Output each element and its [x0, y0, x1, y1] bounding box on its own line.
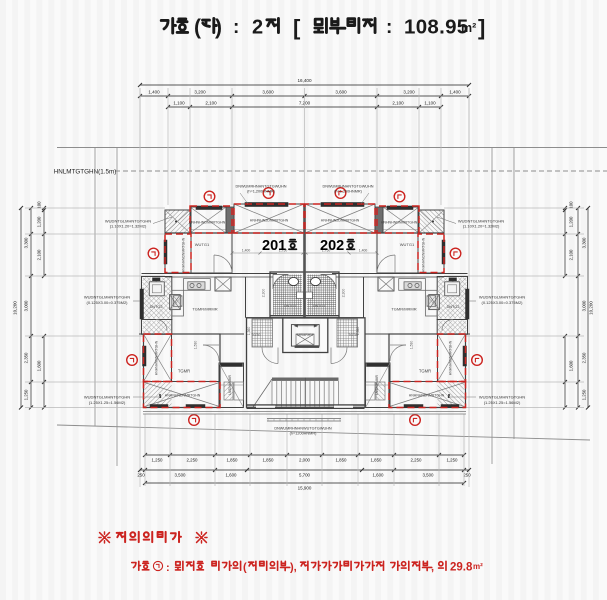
- svg-text:(0.125X3.00=0.375M2): (0.125X3.00=0.375M2): [86, 300, 128, 305]
- svg-text:HNHNHN2DNMRTGHN: HNHNHN2DNMRTGHN: [250, 219, 289, 223]
- svg-text:250: 250: [463, 473, 471, 478]
- svg-text:HNHNHNDNMRTGHN: HNHNHNDNMRTGHN: [189, 221, 226, 225]
- svg-text:2,250: 2,250: [187, 458, 199, 463]
- svg-text:DNTG2: DNTG2: [150, 305, 163, 309]
- svg-text:2,100: 2,100: [205, 101, 217, 106]
- svg-text::: :: [386, 17, 392, 38]
- svg-text:2,350: 2,350: [24, 352, 29, 363]
- svg-text:100: 100: [37, 201, 42, 209]
- svg-text:DNTG1: DNTG1: [313, 304, 325, 308]
- svg-text:HNHNHNDNMRTGHN: HNHNHNDNMRTGHN: [165, 394, 201, 398]
- svg-text:1,100: 1,100: [424, 101, 436, 106]
- svg-text::: :: [233, 17, 239, 38]
- svg-text:),: ),: [290, 562, 297, 574]
- svg-text:2,300: 2,300: [342, 289, 346, 298]
- svg-text:WUTG1: WUTG1: [400, 242, 415, 247]
- svg-text:LMDNHNMR: LMDNHNMR: [228, 375, 232, 395]
- svg-text:250: 250: [137, 473, 145, 478]
- svg-text:100: 100: [569, 201, 574, 209]
- svg-text:2,100: 2,100: [37, 249, 42, 260]
- svg-text:1,850: 1,850: [336, 458, 348, 463]
- svg-text:(1.25X1.25=1.56M2): (1.25X1.25=1.56M2): [484, 400, 521, 405]
- svg-text:3,000: 3,000: [24, 300, 29, 311]
- svg-text:1,600: 1,600: [37, 360, 42, 371]
- svg-text:2,100: 2,100: [392, 101, 404, 106]
- svg-text:3,300: 3,300: [24, 237, 29, 248]
- svg-text:1,250: 1,250: [447, 458, 459, 463]
- svg-text:WUDNTGLMHNTGTGHN: WUDNTGLMHNTGTGHN: [84, 295, 130, 300]
- svg-text:TGMR: TGMR: [178, 369, 190, 374]
- svg-text:1,200: 1,200: [37, 216, 42, 227]
- svg-text:3,500: 3,500: [175, 473, 187, 478]
- svg-text:(: (: [243, 562, 247, 574]
- svg-text:1,360: 1,360: [247, 327, 251, 336]
- svg-text:): ): [215, 16, 222, 39]
- svg-text:1,850: 1,850: [371, 458, 383, 463]
- svg-text:(h=1,200HNMR): (h=1,200HNMR): [247, 189, 275, 193]
- svg-text:m²: m²: [473, 562, 483, 571]
- svg-text:DNTG1: DNTG1: [284, 304, 296, 308]
- svg-text:1,530: 1,530: [194, 341, 198, 350]
- svg-text:5,700: 5,700: [299, 473, 311, 478]
- svg-text:[: [: [293, 15, 301, 40]
- svg-text:3,200: 3,200: [403, 90, 415, 95]
- svg-text:1,250: 1,250: [24, 389, 29, 400]
- svg-text:1,400: 1,400: [148, 90, 160, 95]
- svg-text:(1.10X1.20=1.32M2): (1.10X1.20=1.32M2): [110, 224, 147, 229]
- svg-text:1,250: 1,250: [152, 458, 164, 463]
- svg-text:HNHNHNDNMRTGHN: HNHNHNDNMRTGHN: [182, 237, 186, 272]
- svg-text:,: ,: [431, 562, 434, 574]
- svg-text:HNHNHNDNMRTGHN: HNHNHNDNMRTGHN: [155, 340, 159, 375]
- svg-text:(1.25X1.25=1.56M2): (1.25X1.25=1.56M2): [89, 400, 126, 405]
- svg-text:1,600: 1,600: [226, 473, 238, 478]
- svg-text:1,400: 1,400: [449, 90, 461, 95]
- svg-text:TGMR: TGMR: [419, 369, 431, 374]
- svg-text:202: 202: [320, 238, 344, 254]
- svg-text:10,200: 10,200: [589, 301, 594, 315]
- svg-text:MRMRHN: MRMRHN: [297, 333, 313, 337]
- svg-text:1,250: 1,250: [582, 389, 587, 400]
- svg-text:3,600: 3,600: [262, 90, 274, 95]
- svg-text:3,500: 3,500: [423, 473, 435, 478]
- svg-text:(h=1200HNMR): (h=1200HNMR): [290, 431, 317, 435]
- svg-text:1,400: 1,400: [242, 249, 251, 253]
- svg-text:TGTG: TGTG: [251, 333, 261, 337]
- svg-text:201: 201: [262, 238, 286, 254]
- svg-text:HNLMTGTGHN(1.5m): HNLMTGTGHN(1.5m): [54, 169, 117, 176]
- svg-text:3,200: 3,200: [194, 90, 206, 95]
- svg-text:3,000: 3,000: [582, 300, 587, 311]
- svg-text:m²: m²: [461, 21, 476, 35]
- svg-text:(h=1,200HNMR): (h=1,200HNMR): [334, 189, 362, 193]
- svg-text:TGMR/MRMR: TGMR/MRMR: [192, 307, 217, 312]
- svg-text:DNWUMRHNHNTGTGWUHN: DNWUMRHNHNTGTGWUHN: [322, 185, 373, 189]
- svg-text:1,600: 1,600: [373, 473, 385, 478]
- svg-text:1,530: 1,530: [410, 341, 414, 350]
- svg-text:(0.125X3.00=0.375M2): (0.125X3.00=0.375M2): [481, 300, 523, 305]
- svg-text:1,200: 1,200: [569, 216, 574, 227]
- svg-text:2,350: 2,350: [582, 352, 587, 363]
- svg-text:15,900: 15,900: [298, 486, 312, 491]
- svg-text:HNHNHNDNMRTGHN: HNHNHNDNMRTGHN: [449, 340, 453, 375]
- svg-text:1,850: 1,850: [263, 458, 275, 463]
- svg-text:HNHNHN2DNMRTGHN: HNHNHN2DNMRTGHN: [321, 219, 360, 223]
- svg-text:2: 2: [252, 17, 263, 39]
- svg-text:1,600: 1,600: [569, 360, 574, 371]
- svg-text:]: ]: [478, 15, 485, 40]
- svg-text:1,360: 1,360: [356, 327, 360, 336]
- svg-text:1,850: 1,850: [227, 458, 239, 463]
- svg-text:10,200: 10,200: [13, 301, 18, 315]
- svg-text:16,400: 16,400: [297, 78, 311, 83]
- svg-text:DNWUMRHNHNTGTGWUHN: DNWUMRHNHNTGTGWUHN: [235, 185, 286, 189]
- svg-text:2,300: 2,300: [262, 289, 266, 298]
- svg-text::: :: [166, 562, 170, 574]
- svg-text:HNHNHNDNMRTGHN: HNHNHNDNMRTGHN: [381, 221, 418, 225]
- svg-text:HNHNHNDNMRTGHN: HNHNHNDNMRTGHN: [422, 237, 426, 272]
- svg-text:WUTG1: WUTG1: [195, 242, 210, 247]
- svg-text:(1.10X1.20=1.32M2): (1.10X1.20=1.32M2): [463, 224, 500, 229]
- svg-text:29.8: 29.8: [450, 562, 473, 574]
- svg-text:1,400: 1,400: [359, 249, 368, 253]
- svg-text:WUDNTGLMHNTGTGHN: WUDNTGLMHNTGTGHN: [84, 395, 130, 400]
- svg-text:DNTG2: DNTG2: [447, 305, 460, 309]
- svg-text:WUDNTGLMHNTGTGHN: WUDNTGLMHNTGTGHN: [479, 395, 525, 400]
- svg-text:2,250: 2,250: [411, 458, 423, 463]
- svg-text:2,000: 2,000: [299, 458, 311, 463]
- svg-text:HNHNHNDNMRTGHN: HNHNHNDNMRTGHN: [409, 394, 445, 398]
- svg-text:108.95: 108.95: [404, 16, 469, 39]
- svg-text:(: (: [194, 16, 201, 39]
- svg-text:2,100: 2,100: [569, 249, 574, 260]
- svg-text:LMDNHNMR: LMDNHNMR: [375, 375, 379, 395]
- svg-text:3,300: 3,300: [582, 237, 587, 248]
- svg-text:3,600: 3,600: [335, 90, 347, 95]
- svg-text:WUDNTGLMHNTGTGHN: WUDNTGLMHNTGTGHN: [479, 295, 525, 300]
- svg-text:TGMR/MRMR: TGMR/MRMR: [391, 307, 416, 312]
- svg-text:DNWUMRHNHNWUTGTGWUHN: DNWUMRHNHNWUTGTGWUHN: [274, 427, 332, 431]
- svg-text:1,100: 1,100: [173, 101, 185, 106]
